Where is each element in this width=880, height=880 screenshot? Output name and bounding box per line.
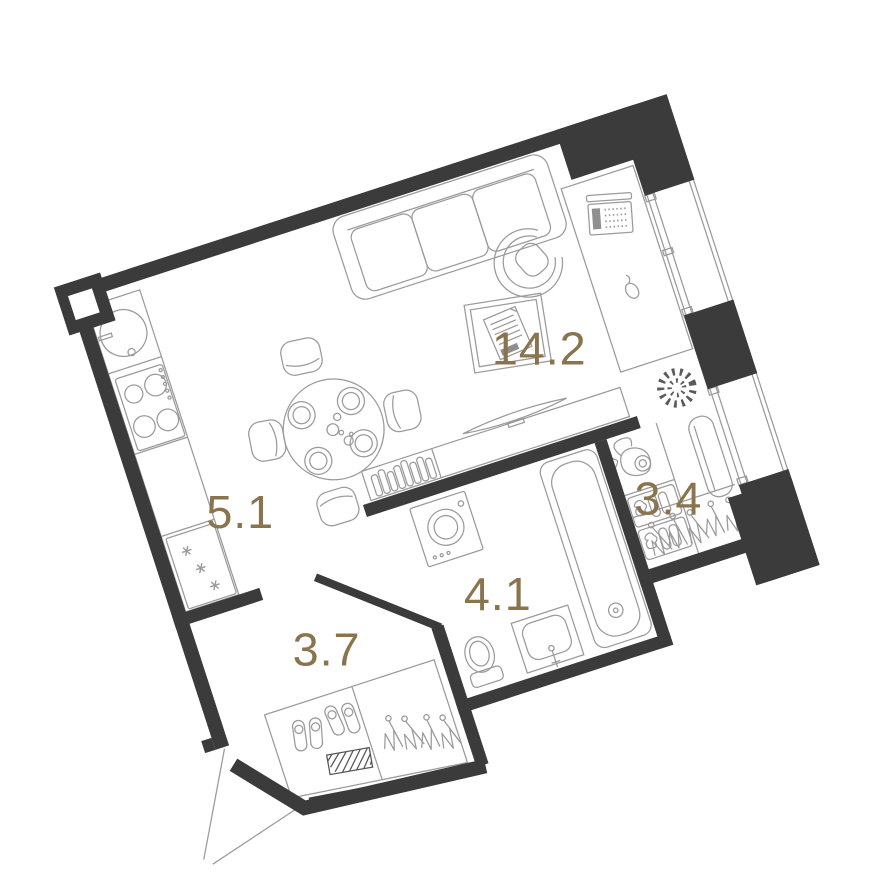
- dining-chair: [314, 484, 362, 528]
- label-kitchen-area: 5.1: [206, 486, 274, 538]
- office-chair: [480, 218, 573, 311]
- wall-right-upper: [617, 94, 694, 196]
- wall-top: [66, 106, 635, 303]
- washing-machine-icon: [410, 491, 484, 567]
- mouse-icon: [618, 274, 641, 301]
- wall-left: [70, 299, 229, 750]
- wall-window-pier: [684, 300, 758, 390]
- tv-icon: [461, 396, 569, 442]
- label-entry-area: 3.7: [293, 624, 361, 676]
- floor-plan-svg: 14.2 5.1 3.4 4.1 3.7: [0, 0, 880, 880]
- floor-plan-page: 14.2 5.1 3.4 4.1 3.7: [0, 0, 880, 880]
- laptop-icon: [586, 193, 634, 236]
- label-bathroom-area: 4.1: [464, 568, 532, 620]
- dining-chair: [279, 336, 325, 378]
- dining-chair: [382, 388, 424, 434]
- plant-icon: [657, 367, 698, 408]
- wall-kitchen-bottom: [172, 588, 263, 628]
- toilet-icon: [459, 632, 505, 688]
- window-living: [645, 193, 693, 316]
- wall-corner-bottom-right: [728, 478, 820, 586]
- label-hall-area: 3.4: [635, 473, 703, 525]
- dining-chair: [247, 418, 288, 463]
- doormat-icon: [327, 748, 373, 775]
- wall-bathroom-bottom: [455, 633, 673, 715]
- label-living-area: 14.2: [492, 323, 587, 375]
